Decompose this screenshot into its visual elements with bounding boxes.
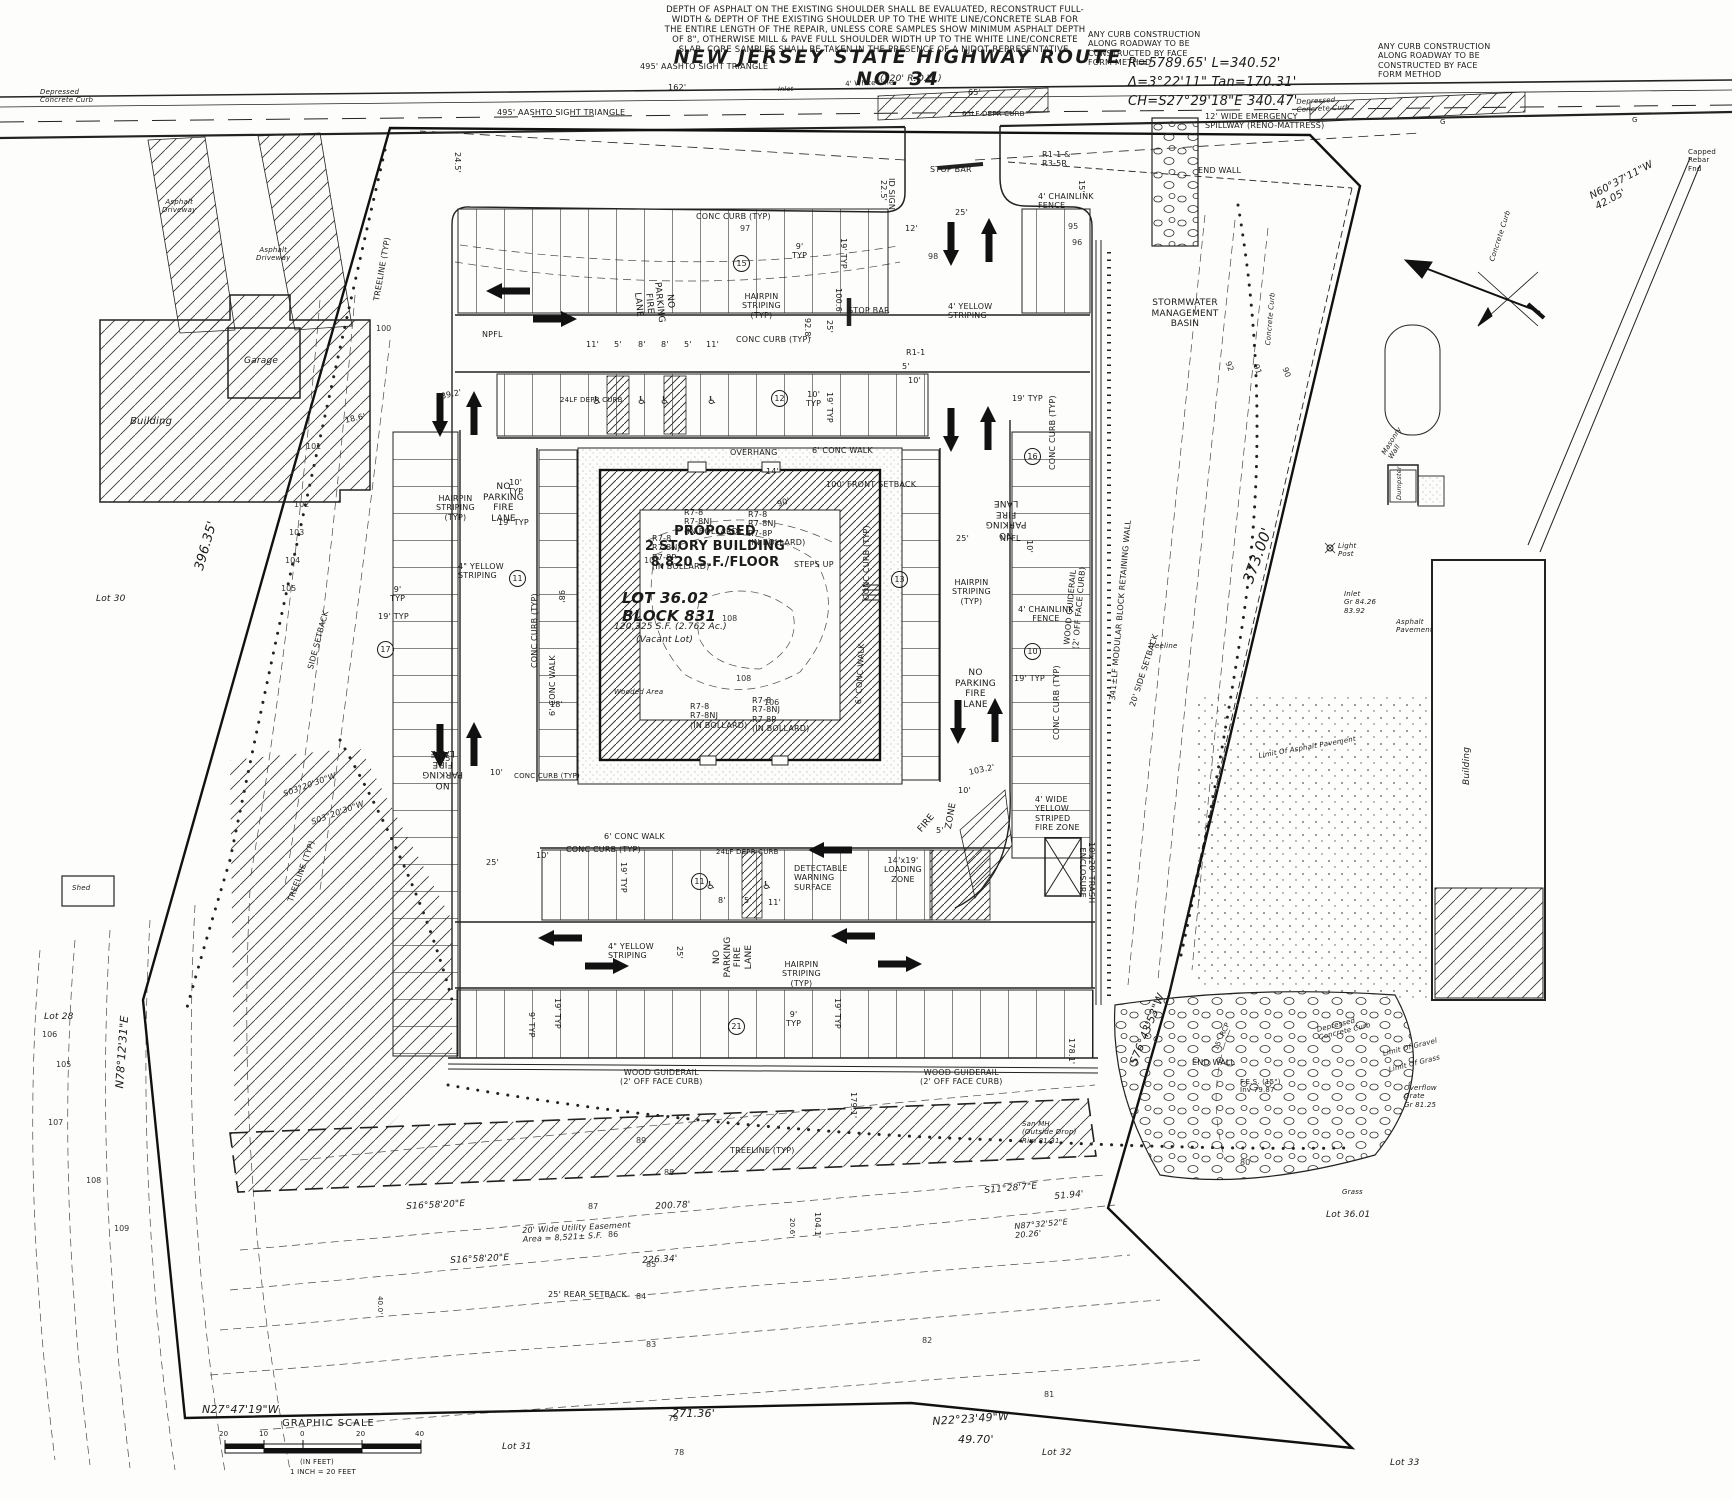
conc-curb-bottom: CONC CURB (TYP) — [566, 845, 641, 854]
scale-inch: 1 INCH = 20 FEET — [290, 1468, 356, 1476]
dim-10typ-top: 10' TYP — [806, 390, 821, 409]
wheelchair-icon-2: ♿ — [637, 395, 647, 408]
white-line-label: 4' White Line — [845, 78, 894, 88]
depressed-curb-left: Depressed Concrete Curb — [40, 88, 93, 105]
dim-9typ-left: 9' TYP — [390, 585, 405, 604]
dim-19typ-inner: 19' TYP — [825, 392, 834, 423]
end-wall-2: END WALL — [1192, 1058, 1235, 1067]
dim-19typ-left2: 19' TYP — [378, 612, 409, 621]
dim-25-ba: 25' — [675, 946, 684, 959]
contour-105a: 105 — [281, 584, 296, 593]
treeline-bottom: TREELINE (TYP) — [730, 1146, 795, 1155]
sign-cluster-e: R7-8 R7-8NJ R7-8P (IN BOLLARD) — [752, 696, 809, 734]
inlet-right: Inlet Gr 84.26 83.92 — [1344, 590, 1376, 615]
contour-97: 97 — [740, 224, 750, 233]
dim-400: 40.0' — [376, 1296, 384, 1315]
hc-dim-5c: 5' — [744, 896, 752, 905]
contour-105b: 105 — [56, 1060, 71, 1069]
rear-setback: 25' REAR SETBACK — [548, 1290, 627, 1299]
hc-dim-11c: 11' — [768, 898, 781, 907]
gas-marker-1: G — [1440, 118, 1446, 126]
hc-dim-8c: 8' — [718, 896, 726, 905]
wooded-area-label: Wooded Area — [614, 688, 663, 696]
grass-label: Grass — [1342, 1188, 1363, 1196]
slope-and-easement — [230, 748, 1096, 1192]
light-post: Light Post — [1338, 542, 1356, 559]
contour-106: 106 — [42, 1030, 57, 1039]
contour-86: 86 — [608, 1230, 618, 1239]
scale-infeet: (IN FEET) — [300, 1458, 334, 1466]
graphic-scale-title: GRAPHIC SCALE — [282, 1418, 375, 1430]
lot-31: Lot 31 — [502, 1442, 532, 1453]
wheelchair-icon-3: ♿ — [660, 395, 670, 408]
lot-32: Lot 32 — [1042, 1448, 1072, 1459]
yellow-striping-bottom: 4" YELLOW STRIPING — [608, 942, 654, 961]
conc-curb-right2: CONC CURB (TYP) — [862, 525, 871, 600]
dim-162: 162' — [668, 83, 686, 92]
contour-98: 98 — [928, 252, 938, 261]
dumpster-label: Dumpster — [1396, 466, 1404, 500]
hc-dim-5a: 5' — [614, 340, 622, 349]
dim-10-bi: 10' — [536, 851, 549, 860]
scale-40: 40 — [415, 1430, 424, 1438]
dim-25-entr: 25' — [955, 208, 968, 217]
conc-walk-left: 6' CONC WALK — [548, 655, 557, 716]
dim-5-fz: 5' — [936, 826, 944, 835]
spillway-note: 12' WIDE EMERGENCY SPILLWAY (RENO-MATTRE… — [1205, 112, 1324, 131]
stall-count-12: 12 — [771, 390, 788, 407]
depressed-curb-right: Depressed Concrete Curb — [1296, 95, 1350, 114]
asphalt-driveway-2: Asphalt Driveway — [256, 246, 290, 263]
contour-107a: 107 — [48, 1118, 63, 1127]
scale-bar — [225, 1440, 421, 1453]
dim-25-right: 25' — [956, 534, 969, 543]
dim-12: 12' — [905, 224, 918, 233]
npfl-short-left: NPFL — [482, 330, 503, 339]
dim-20078: 200.78' — [655, 1200, 691, 1212]
stall-count-11a: 11 — [509, 570, 526, 587]
contour-106b: 106 — [764, 698, 779, 707]
contour-82: 82 — [922, 1336, 932, 1345]
north-arrow-icon — [1405, 260, 1544, 326]
contour-85: 85 — [646, 1260, 656, 1269]
dim-19typ-bi: 19' TYP — [619, 862, 628, 893]
dim-19typ-bo2: 19' TYP — [833, 998, 842, 1029]
contour-102: 102 — [294, 500, 309, 509]
proposed-building-label: PROPOSED 2 STORY BUILDING 8,820 S.F./FLO… — [640, 524, 790, 570]
conc-curb-left2: CONC CURB (TYP) — [514, 772, 580, 780]
dim-19typ-right1: 19' TYP — [1012, 394, 1043, 403]
conc-walk-top: 6' CONC WALK — [812, 446, 873, 455]
dim-4970: 49.70' — [958, 1434, 994, 1447]
hairpin-left: HAIRPIN STRIPING (TYP) — [436, 494, 475, 522]
site-plan-sheet: DEPTH OF ASPHALT ON THE EXISTING SHOULDE… — [0, 0, 1732, 1500]
conc-curb-right1: CONC CURB (TYP) — [1048, 395, 1057, 470]
bearing-n27: N27°47'19"W — [202, 1404, 279, 1417]
dim-9typ-bo1: 9' TYP — [527, 1012, 536, 1038]
stall-count-21: 21 — [728, 1018, 745, 1035]
sign-r11-r35r: R1-1 & R3-5R — [1042, 150, 1071, 169]
stall-count-10: 10 — [1024, 643, 1041, 660]
contour-100: 100 — [376, 324, 391, 333]
wood-guiderail-b2: WOOD GUIDERAIL (2' OFF FACE CURB) — [920, 1068, 1003, 1087]
curb-construction-note-right: ANY CURB CONSTRUCTION ALONG ROADWAY TO B… — [1378, 42, 1490, 80]
stop-bar-2: STOP BAR — [848, 306, 890, 315]
lot-30: Lot 30 — [96, 594, 126, 605]
san-mh: San MH (Outside Drop) Rim 81.31 — [1022, 1120, 1077, 1145]
fire-zone-wide-label: 4' WIDE YELLOW STRIPED FIRE ZONE — [1035, 795, 1080, 833]
capped-rebar: Capped Rebar Fnd — [1688, 148, 1716, 173]
dim-25-left: 25' — [440, 754, 453, 763]
hairpin-top: HAIRPIN STRIPING (TYP) — [742, 292, 781, 320]
contour-79: 79 — [668, 1414, 678, 1423]
contour-95: 95 — [1068, 222, 1078, 231]
stall-count-16: 16 — [1024, 448, 1041, 465]
aashto-label-2: 495' AASHTO SIGHT TRIANGLE — [497, 108, 625, 117]
building-right-label: Building — [1462, 747, 1473, 785]
highway-lines — [0, 80, 1732, 160]
dim-1041: 104.1' — [813, 1212, 822, 1238]
contour-83: 83 — [646, 1340, 656, 1349]
sign-cluster-d: R7-8 R7-8NJ (IN BOLLARD) — [690, 702, 747, 730]
contour-108b: 108 — [722, 614, 737, 623]
hc-dim-8b: 8' — [661, 340, 669, 349]
wood-guiderail-b1: WOOD GUIDERAIL (2' OFF FACE CURB) — [620, 1068, 703, 1087]
dim-5-r: 5' — [902, 362, 910, 371]
conc-curb-inner-top: CONC CURB (TYP) — [736, 335, 811, 344]
depr-curb-24-top: 24LF DEPR CURB — [560, 396, 623, 404]
wheelchair-icon-5: ♿ — [706, 880, 716, 893]
contour-89: 89 — [636, 1136, 646, 1145]
dim-19typ-right2: 19' TYP — [1014, 674, 1045, 683]
npfl-bottom: NO PARKING FIRE LANE — [712, 928, 754, 986]
loading-zone-label: 14'x19' LOADING ZONE — [884, 856, 922, 884]
steps-up-label: STEPS UP — [794, 560, 834, 569]
shed-label: Shed — [72, 884, 90, 892]
wheelchair-icon-6: ♿ — [762, 880, 772, 893]
contour-104: 104 — [285, 556, 300, 565]
lot-33: Lot 33 — [1390, 1458, 1420, 1469]
sign-r1-1: R1-1 — [906, 348, 925, 357]
dim-25-aisle: 25' — [825, 320, 834, 333]
fes-label: F.E.S. (15") Inv 79.87 — [1240, 1078, 1281, 1095]
dim-9typ-bo2: 9' TYP — [786, 1010, 801, 1029]
overflow-grate: Overflow Grate Gr 81.25 — [1404, 1084, 1437, 1109]
contour-88: 88 — [664, 1168, 674, 1177]
contour-103: 103 — [289, 528, 304, 537]
contour-87: 87 — [588, 1202, 598, 1211]
scale-20r: 20 — [356, 1430, 365, 1438]
scale-10: 10 — [259, 1430, 268, 1438]
hc-dim-8a: 8' — [638, 340, 646, 349]
npfl-short-right: NPFL — [1000, 534, 1021, 543]
contour-81: 81 — [1044, 1390, 1054, 1399]
dim-1006: 100.6' — [834, 288, 843, 314]
dim-206: 20.6' — [788, 1218, 796, 1237]
stop-bar-1: STOP BAR — [930, 165, 972, 174]
dim-19typ-bo1: 19' TYP — [553, 998, 562, 1029]
conc-curb-right3: CONC CURB (TYP) — [1052, 665, 1061, 740]
hc-dim-11b: 11' — [706, 340, 719, 349]
dim-19typ-top: 19' TYP — [839, 238, 848, 269]
conc-curb-left: CONC CURB (TYP) — [530, 593, 539, 668]
lot-3601: Lot 36.01 — [1326, 1210, 1370, 1221]
contour-80: 80 — [1240, 1158, 1250, 1167]
chainlink-fence-1: 4' CHAINLINK FENCE — [1038, 192, 1094, 211]
dim-65: 65' — [968, 88, 981, 97]
dim-10-r: 10' — [908, 376, 921, 385]
conc-curb-top: CONC CURB (TYP) — [696, 212, 771, 221]
end-wall-1: END WALL — [1198, 166, 1241, 175]
garage-label: Garage — [244, 356, 278, 367]
stall-count-17: 17 — [377, 641, 394, 658]
dim-9typ-top: 9' TYP — [792, 242, 807, 261]
dim-10-right: 10' — [1025, 540, 1034, 553]
dim-14: 14' — [766, 467, 779, 476]
curb-construction-note-left: ANY CURB CONSTRUCTION ALONG ROADWAY TO B… — [1088, 30, 1200, 68]
dim-10-fz: 10' — [958, 786, 971, 795]
asphalt-driveway-1: Asphalt Driveway — [162, 198, 196, 215]
yellow-striping-left: 4" YELLOW STRIPING — [458, 562, 504, 581]
vacant-lot-label: (Vacant Lot) — [636, 635, 693, 646]
hairpin-right: HAIRPIN STRIPING (TYP) — [952, 578, 991, 606]
building-left-label: Building — [130, 416, 172, 428]
hc-dim-5b: 5' — [684, 340, 692, 349]
dws-label: DETECTABLE WARNING SURFACE — [794, 864, 847, 892]
stall-count-13: 13 — [891, 571, 908, 588]
scale-20l: 20 — [219, 1430, 228, 1438]
lot-28: Lot 28 — [44, 1012, 74, 1023]
npfl-right-2: NO PARKING FIRE LANE — [948, 668, 1003, 710]
dim-245: 24.5' — [453, 152, 462, 173]
aashto-label-1: 495' AASHTO SIGHT TRIANGLE — [640, 62, 768, 71]
conc-walk-bottom: 6' CONC WALK — [604, 832, 665, 841]
inlet-small: Inlet — [778, 86, 793, 94]
trash-enclosure-label: 10'x20' TRASH ENCLOSURE — [1077, 842, 1096, 903]
contour-96: 96 — [1072, 238, 1082, 247]
depr-curb-65lf: 65LF DEPR CURB — [962, 110, 1025, 118]
hc-dim-11a: 11' — [586, 340, 599, 349]
dim-98: 98' — [557, 590, 566, 603]
front-setback: 100' FRONT SETBACK — [826, 480, 916, 489]
yellow-striping-ft: 4' YELLOW STRIPING — [948, 302, 992, 321]
stall-count-15: 15 — [733, 255, 750, 272]
dim-25-bi: 25' — [486, 858, 499, 867]
lot-area-label: 120,325 S.F. (2.762 Ac.) — [614, 622, 727, 633]
asphalt-pavement: Asphalt Pavement — [1396, 618, 1433, 635]
contour-109: 109 — [114, 1224, 129, 1233]
npfl-top: NO PARKING FIRE LANE — [630, 272, 678, 334]
contour-108c: 108 — [736, 674, 751, 683]
dim-225: 22.5' — [879, 180, 888, 201]
npfl-left: NO PARKING FIRE LANE — [476, 482, 531, 524]
scale-0: 0 — [300, 1430, 305, 1438]
stormwater-basin-label: STORMWATER MANAGEMENT BASIN — [1130, 298, 1240, 330]
wheelchair-icon-4: ♿ — [707, 395, 717, 408]
dim-1791: 179.1' — [849, 1092, 858, 1118]
dim-271: 271.36' — [672, 1408, 715, 1421]
lot-block-label: LOT 36.02 BLOCK 831 — [622, 590, 716, 625]
dim-1781: 178.1' — [1067, 1038, 1076, 1064]
contour-107b: 107 — [644, 556, 659, 565]
depr-curb-24-bottom: 24LF DEPR CURB — [716, 848, 779, 856]
overhang-label: OVERHANG — [730, 448, 778, 457]
treeline-small: Treeline — [1148, 642, 1177, 650]
gas-marker-2: G — [1632, 116, 1638, 124]
contour-101: 101 — [306, 442, 321, 451]
contour-84: 84 — [636, 1292, 646, 1301]
hairpin-bottom: HAIRPIN STRIPING (TYP) — [782, 960, 821, 988]
contour-78: 78 — [674, 1448, 684, 1457]
contour-108a: 108 — [86, 1176, 101, 1185]
dim-10-left: 10' — [490, 768, 503, 777]
